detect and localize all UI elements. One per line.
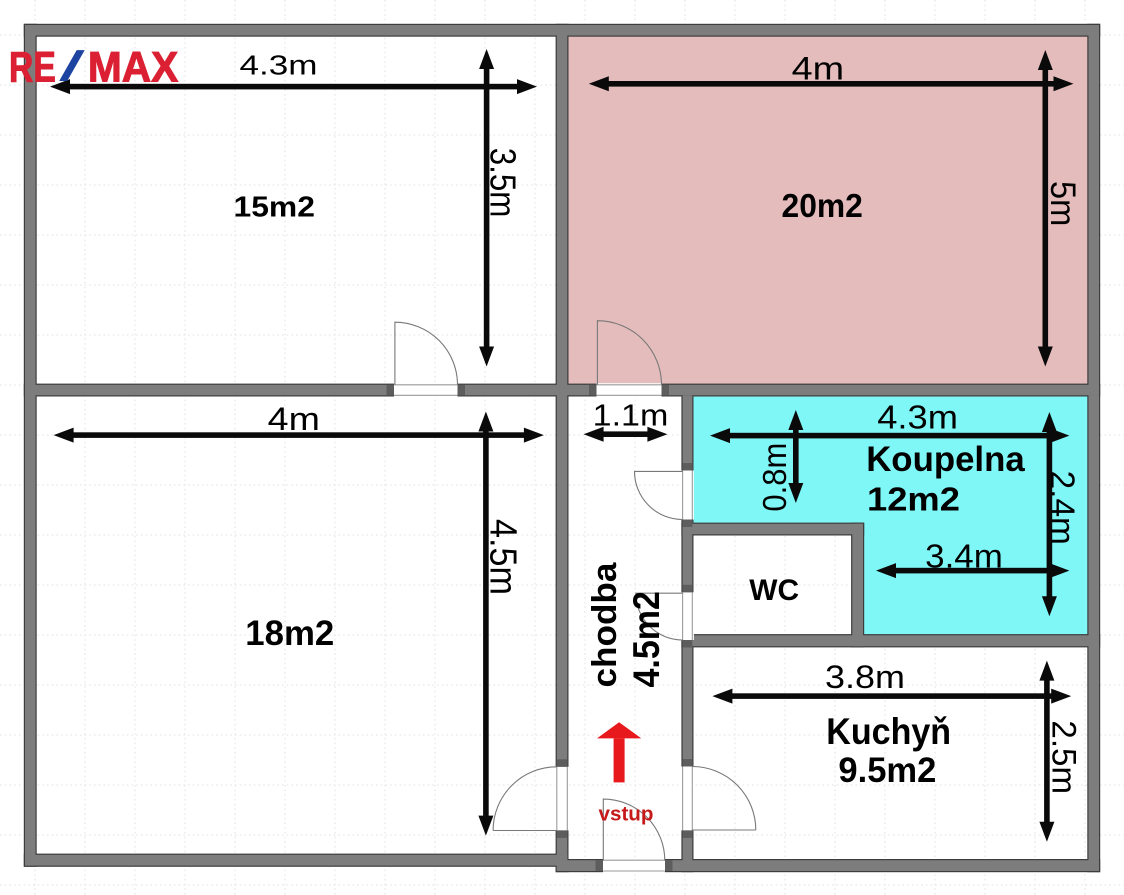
svg-text:2.5m: 2.5m xyxy=(1044,720,1082,794)
svg-text:WC: WC xyxy=(749,574,799,607)
svg-text:4.5m: 4.5m xyxy=(482,519,524,595)
svg-text:15m2: 15m2 xyxy=(234,192,315,224)
svg-text:4m: 4m xyxy=(792,51,845,87)
svg-text:chodba: chodba xyxy=(586,562,624,688)
svg-text:Kuchyň: Kuchyň xyxy=(826,710,951,752)
svg-text:0.8m: 0.8m xyxy=(756,443,793,512)
svg-text:5m: 5m xyxy=(1043,181,1082,226)
svg-text:3.5m: 3.5m xyxy=(483,148,524,218)
svg-text:3.4m: 3.4m xyxy=(925,539,1003,576)
svg-text:9.5m2: 9.5m2 xyxy=(838,751,936,790)
svg-text:vstup: vstup xyxy=(599,803,654,826)
svg-text:4m: 4m xyxy=(268,401,320,437)
svg-text:4.5m2: 4.5m2 xyxy=(626,591,667,687)
svg-text:4.3m: 4.3m xyxy=(877,399,958,436)
svg-text:1.1m: 1.1m xyxy=(593,398,669,433)
svg-text:12m2: 12m2 xyxy=(867,481,960,518)
svg-text:2.4m: 2.4m xyxy=(1043,471,1081,545)
svg-text:18m2: 18m2 xyxy=(245,614,334,653)
svg-text:3.8m: 3.8m xyxy=(825,658,905,695)
svg-text:RE: RE xyxy=(9,44,56,91)
svg-text:20m2: 20m2 xyxy=(782,187,863,224)
svg-text:MAX: MAX xyxy=(88,44,178,91)
svg-text:4.3m: 4.3m xyxy=(240,50,318,81)
svg-text:Koupelna: Koupelna xyxy=(866,440,1025,479)
